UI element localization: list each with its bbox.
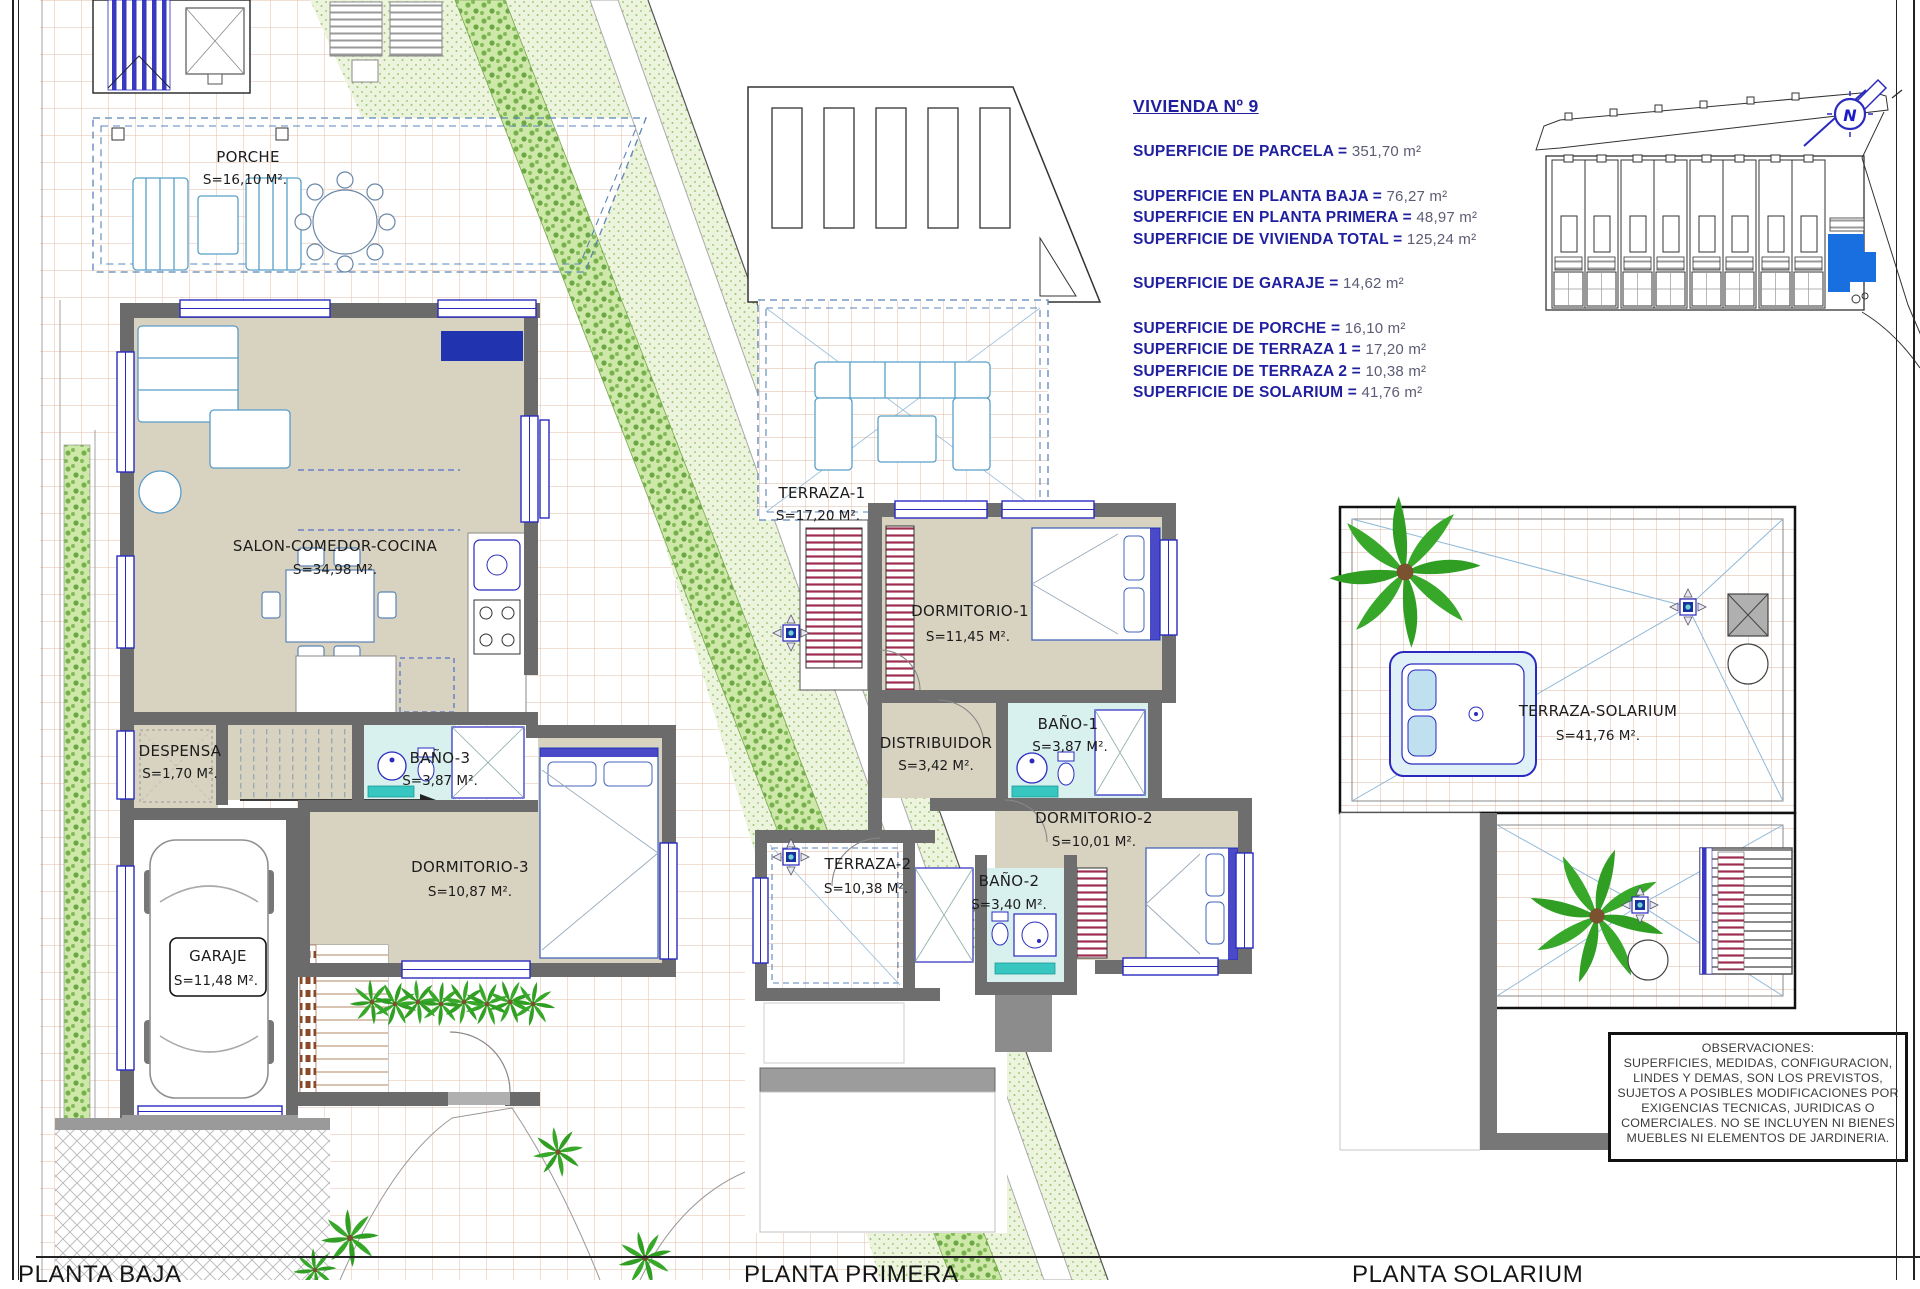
frame-left [12, 0, 14, 1280]
dorm1-label: DORMITORIO-1 [911, 602, 1029, 620]
upper-stair-dashes [234, 727, 346, 798]
porch-post [112, 128, 124, 140]
porch-post [276, 128, 288, 140]
terraza2-area: S=10,38 M². [824, 881, 908, 897]
jacuzzi [1390, 652, 1536, 776]
superficie-garaje: SUPERFICIE DE GARAJE = 14,62 m² [1133, 273, 1573, 295]
dorm2-area: S=10,01 M². [1052, 834, 1136, 850]
primera-stairs [800, 520, 868, 690]
despensa-label: DESPENSA [139, 742, 222, 760]
garaje-label: GARAJE [189, 947, 247, 965]
bano3-area: S=3,87 M². [402, 773, 478, 789]
bano1-area: S=3,87 M². [1032, 739, 1108, 755]
solarium-pergola [1700, 848, 1792, 974]
solarium-wall-vertical [1480, 813, 1497, 1150]
dorm1-area: S=11,45 M². [926, 629, 1010, 645]
planta-solarium-title: PLANTA SOLARIUM [1352, 1261, 1583, 1289]
wardrobe-dorm2 [1077, 868, 1107, 958]
dorm3-label: DORMITORIO-3 [411, 858, 529, 876]
terraza-solarium-label: TERRAZA-SOLARIUM [1518, 702, 1678, 720]
terraza1-sofas [815, 362, 990, 470]
terraza1-area: S=17,20 M². [776, 508, 860, 524]
porche-area: S=16,10 M². [203, 172, 287, 188]
superficie-solarium: SUPERFICIE DE SOLARIUM = 41,76 m² [1133, 382, 1573, 404]
dorm2-label: DORMITORIO-2 [1035, 809, 1153, 827]
frame-bottom [36, 1256, 1920, 1258]
bano2-fixtures [992, 912, 1056, 974]
primera-gray-block [995, 995, 1052, 1052]
highlighted-unit [1828, 218, 1876, 292]
info-panel: VIVIENDA Nº 9 SUPERFICIE DE PARCELA = 35… [1133, 96, 1573, 404]
vivienda-title: VIVIENDA Nº 9 [1133, 96, 1573, 117]
porch-dining-table [295, 172, 395, 272]
primera-roof [748, 87, 1100, 302]
garaje-area: S=11,48 M². [174, 973, 258, 989]
observaciones-box: OBSERVACIONES: SUPERFICIES, MEDIDAS, CON… [1608, 1032, 1908, 1162]
bed-dorm2 [1146, 848, 1238, 960]
site-plan: N [1536, 80, 1920, 368]
bano2-label: BAÑO-2 [979, 871, 1040, 890]
superficie-terraza2: SUPERFICIE DE TERRAZA 2 = 10,38 m² [1133, 361, 1573, 383]
tv-cabinet [441, 331, 523, 361]
superficie-parcela: SUPERFICIE DE PARCELA = 351,70 m² [1133, 141, 1573, 163]
bano3-label: BAÑO-3 [410, 748, 471, 767]
bano2-area: S=3,40 M². [971, 897, 1047, 913]
superficie-vivienda-total: SUPERFICIE DE VIVIENDA TOTAL = 125,24 m² [1133, 229, 1573, 251]
superficie-porche: SUPERFICIE DE PORCHE = 16,10 m² [1133, 318, 1573, 340]
despensa-area: S=1,70 M². [142, 766, 218, 782]
bed-dorm1 [1032, 528, 1160, 640]
salon-area: S=34,98 M². [293, 562, 377, 578]
superficie-planta-primera: SUPERFICIE EN PLANTA PRIMERA = 48,97 m² [1133, 207, 1573, 229]
pergola [93, 0, 250, 93]
porche-label: PORCHE [216, 148, 280, 166]
frame-right [1896, 0, 1897, 1280]
primera-balcony-band [760, 1068, 995, 1092]
street-band [1536, 92, 1888, 150]
observaciones-title: OBSERVACIONES: [1611, 1041, 1905, 1056]
terraza2-label: TERRAZA-2 [823, 855, 911, 873]
terraza-solarium-area: S=41,76 M². [1556, 728, 1640, 744]
distribuidor-area: S=3,42 M². [898, 758, 974, 774]
architectural-sheet: { "info_panel": { "title": "VIVIENDA Nº … [0, 0, 1920, 1280]
north-label: N [1843, 106, 1857, 125]
terraza1-label: TERRAZA-1 [777, 484, 865, 502]
distribuidor-label: DISTRIBUIDOR [880, 734, 993, 752]
superficie-planta-baja: SUPERFICIE EN PLANTA BAJA = 76,27 m² [1133, 186, 1573, 208]
bano1-label: BAÑO-1 [1038, 714, 1099, 733]
bed-dorm3 [540, 748, 658, 958]
superficie-terraza1: SUPERFICIE DE TERRAZA 1 = 17,20 m² [1133, 339, 1573, 361]
dorm3-area: S=10,87 M². [428, 884, 512, 900]
planta-baja-title: PLANTA BAJA [18, 1261, 182, 1289]
wardrobe-dorm1 [886, 526, 914, 698]
washer [1014, 914, 1056, 956]
planta-primera-title: PLANTA PRIMERA [744, 1261, 959, 1289]
salon-label: SALON-COMEDOR-COCINA [233, 537, 438, 555]
